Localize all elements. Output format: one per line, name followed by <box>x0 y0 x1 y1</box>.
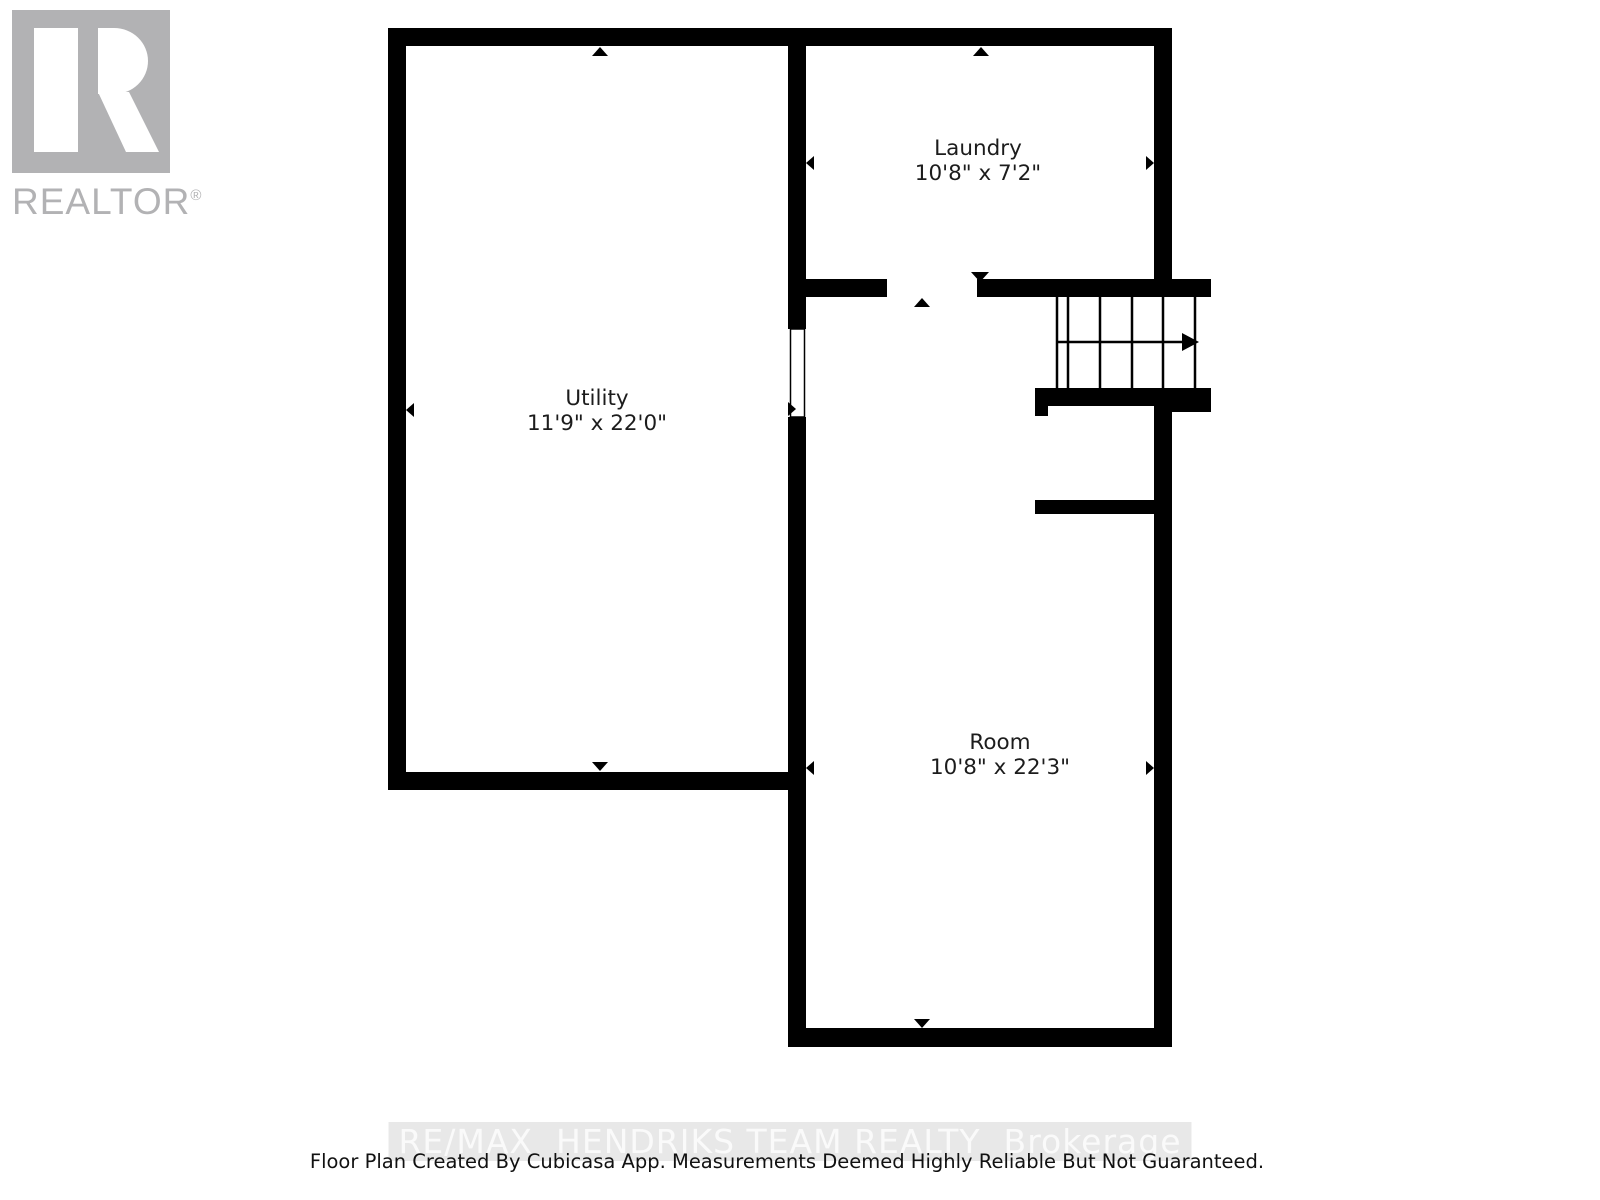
wall-laundry-right <box>1154 28 1172 297</box>
marker-utility-top-icon <box>592 47 608 56</box>
marker-laundry-door-icon <box>914 298 930 307</box>
wall-stair-bottom-stub <box>1172 388 1211 412</box>
room-label-room: Room 10'8" x 22'3" <box>930 730 1070 780</box>
room-label-laundry: Laundry 10'8" x 7'2" <box>915 136 1041 186</box>
room-dimensions: 10'8" x 22'3" <box>930 755 1070 780</box>
room-dimensions: 11'9" x 22'0" <box>527 411 667 436</box>
wall-closet-left-stub <box>1035 402 1048 416</box>
room-name: Utility <box>527 386 667 411</box>
marker-room-right-icon <box>1146 761 1154 775</box>
room-dimensions: 10'8" x 7'2" <box>915 161 1041 186</box>
wall-divider-upper <box>788 28 806 329</box>
wall-top <box>388 28 1172 46</box>
wall-stair-top <box>977 279 1211 297</box>
wall-left <box>388 28 406 790</box>
marker-laundry-left-icon <box>806 156 814 170</box>
wall-laundry-bottom <box>806 279 887 297</box>
floor-plan-drawing <box>0 0 1600 1200</box>
staircase <box>1057 297 1199 388</box>
wall-utility-bottom <box>388 772 806 790</box>
room-name: Room <box>930 730 1070 755</box>
door-utility <box>791 329 805 417</box>
wall-room-bottom <box>788 1028 1172 1047</box>
room-label-utility: Utility 11'9" x 22'0" <box>527 386 667 436</box>
floor-plan-page: REALTOR® <box>0 0 1600 1200</box>
wall-closet-bottom <box>1035 500 1157 514</box>
marker-room-left-icon <box>806 761 814 775</box>
stair-direction-arrow-icon <box>1182 333 1199 351</box>
marker-utility-left-icon <box>406 403 414 417</box>
marker-laundry-right-icon <box>1146 156 1154 170</box>
marker-room-bottom-icon <box>914 1019 930 1028</box>
room-name: Laundry <box>915 136 1041 161</box>
disclaimer-text: Floor Plan Created By Cubicasa App. Meas… <box>310 1150 1264 1173</box>
wall-divider-lower <box>788 417 806 1047</box>
wall-room-right <box>1154 388 1172 1047</box>
marker-utility-bottom-icon <box>592 762 608 771</box>
marker-laundry-top-icon <box>973 47 989 56</box>
